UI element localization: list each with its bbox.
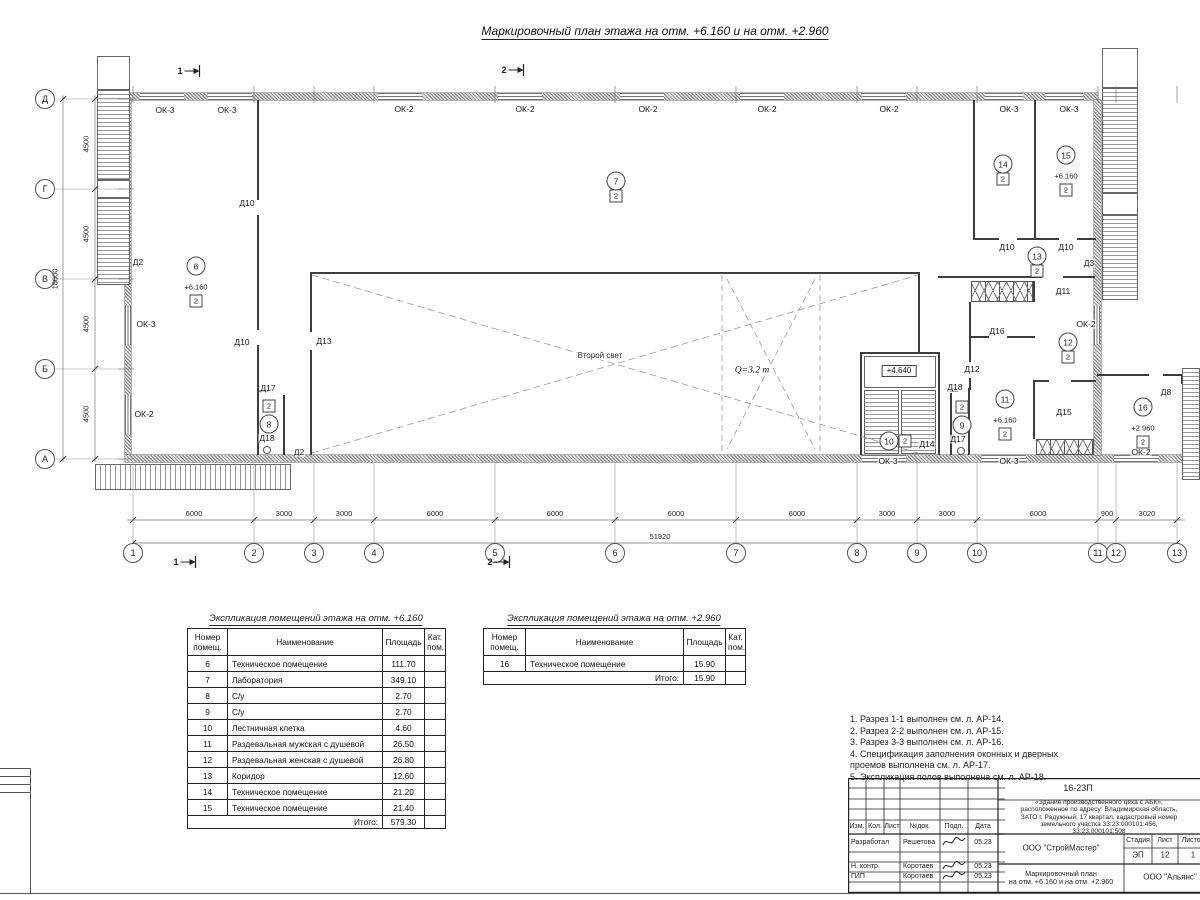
table-cell (425, 672, 446, 688)
door-label: Д15 (1055, 408, 1072, 417)
table-cell (425, 656, 446, 672)
room-6-elevation: +6.160 (184, 283, 207, 292)
signature-icon (941, 835, 967, 849)
door-label: Д11 (1055, 287, 1072, 296)
dimension-label: 3000 (939, 509, 956, 518)
table-cell: 349.10 (383, 672, 425, 688)
dimension-label: 900 (1101, 509, 1114, 518)
axis-bubble-12: 12 (1106, 543, 1126, 563)
wc-fixture (957, 447, 965, 455)
door-label: Д10 (1057, 243, 1074, 252)
room-6-category: 2 (190, 295, 203, 308)
table-header-cell: Площадь (684, 629, 726, 656)
table-cell: 8 (188, 688, 228, 704)
window (125, 395, 131, 435)
table-cell: С/у (228, 704, 383, 720)
total-label: Итого: (484, 672, 684, 685)
door-label: Д16 (988, 327, 1005, 336)
table-row: 15Техническое помещение21.40 (188, 800, 446, 816)
stamp-role-cell: 05.23 (974, 863, 992, 871)
window (140, 93, 184, 100)
table-cell (726, 656, 746, 672)
table-cell: 21.40 (383, 800, 425, 816)
stair-flight (1102, 88, 1138, 193)
table-cell (425, 720, 446, 736)
partition-wall (938, 352, 940, 455)
dimension-label: 4500 (82, 316, 91, 333)
table-cell: Техническое помещение (228, 784, 383, 800)
table-header-cell: Кат. пом. (425, 629, 446, 656)
room-11-elevation: +6.160 (993, 416, 1016, 425)
axis-bubble-6: 6 (605, 543, 625, 563)
room-16-category: 2 (1137, 436, 1150, 449)
note-item: 3. Разрез 3-3 выполнен см. л. АР-16. (850, 737, 1180, 749)
dimension-label: 3000 (879, 509, 896, 518)
door-label: Д14 (918, 440, 935, 449)
partition-wall (860, 352, 862, 455)
table-cell: Раздевальная женская с душевой (228, 752, 383, 768)
partition-wall (1034, 100, 1036, 238)
window-label: ОК-2 (756, 105, 777, 114)
axis-bubble-9: 9 (907, 543, 927, 563)
stair-flight (95, 464, 291, 490)
frame-cell-line (0, 776, 30, 777)
room-8-category: 2 (263, 400, 276, 413)
table-row: 10Лестничная клетка4.60 (188, 720, 446, 736)
sheets-value: 1 (1191, 852, 1195, 861)
door-label: Д3 (1083, 259, 1095, 268)
door-label: Д13 (315, 337, 332, 346)
axis-bubble-1: 1 (123, 543, 143, 563)
partition-wall (860, 352, 940, 354)
table-header-cell: Номер помещ. (188, 629, 228, 656)
axis-bubble-Д: Д (35, 89, 55, 109)
door-label: Д18 (946, 383, 963, 392)
stair-landing (97, 56, 130, 90)
wc-fixture (263, 446, 271, 454)
stamp-header-col: Подл. (945, 823, 964, 831)
axis-bubble-А: А (35, 449, 55, 469)
sheet-label: Лист (1157, 837, 1172, 845)
partition-wall (1077, 238, 1096, 240)
door-label: Д17 (949, 435, 966, 444)
partition-wall (1007, 336, 1035, 338)
project-description: «Здание производственного цеха с АБК», р… (1015, 799, 1184, 835)
frame-cell-line (0, 768, 30, 769)
dimension-label: 6000 (1030, 509, 1047, 518)
partition-wall (257, 100, 259, 200)
dimension-label: 6000 (186, 509, 203, 518)
partition-wall (969, 338, 971, 362)
table-cell: Техническое помещение (228, 800, 383, 816)
partition-wall (310, 272, 920, 274)
customer-org: ООО "Альянс" (1143, 874, 1197, 883)
window-label: ОК-3 (998, 457, 1019, 466)
axis-bubble-2: 2 (244, 543, 264, 563)
dimension-label: 3020 (1139, 509, 1156, 518)
drawing-name: Маркировочный план на отм. +6.160 и на о… (1009, 870, 1113, 886)
table-cell: 13 (188, 768, 228, 784)
room-7-category: 2 (610, 190, 623, 203)
window (740, 93, 784, 100)
table-cell (425, 800, 446, 816)
table-cell (425, 768, 446, 784)
window-label: ОК-2 (637, 105, 658, 114)
dimension-total: 51920 (650, 532, 671, 541)
table-cell: 26.80 (383, 752, 425, 768)
stamp-header-col: Изм. (850, 823, 865, 831)
table-cell: 15.90 (684, 656, 726, 672)
axis-bubble-Б: Б (35, 359, 55, 379)
axis-bubble-3: 3 (304, 543, 324, 563)
table-row: 6Техническое помещение111.70 (188, 656, 446, 672)
axis-bubble-8: 8 (847, 543, 867, 563)
table-cell: 12.60 (383, 768, 425, 784)
door-label: Д2 (293, 448, 305, 457)
crane-capacity-label: Q=3.2 т (734, 366, 770, 376)
room-6-marker: 6 (187, 257, 206, 276)
table-cell: 15 (188, 800, 228, 816)
table-total-row: Итого:15.90 (484, 672, 746, 685)
sheet-value: 12 (1161, 852, 1170, 861)
table-row: 7Лаборатория349.10 (188, 672, 446, 688)
doc-number: 16-23П (1063, 784, 1093, 794)
table-cell (425, 816, 446, 829)
room-12-category: 2 (1062, 351, 1075, 364)
window (1045, 93, 1083, 100)
window (862, 93, 906, 100)
total-label: Итого: (188, 816, 383, 829)
table-cell: Раздевальная мужская с душевой (228, 736, 383, 752)
stamp-header-col: Кол. (868, 823, 882, 831)
partition-wall (1097, 374, 1149, 376)
partition-wall (257, 215, 259, 330)
stamp-role-cell: Н. контр. (851, 863, 880, 871)
dimension-label: 3000 (336, 509, 353, 518)
note-item: 4. Спецификация заполнения оконных и две… (850, 749, 1180, 772)
total-value: 579.30 (383, 816, 425, 829)
table-title: Экспликация помещений этажа на отм. +6.1… (209, 613, 422, 626)
drawing-title: Маркировочный план этажа на отм. +6.160 … (481, 24, 828, 40)
stair-flight (1182, 368, 1200, 480)
partition-wall (973, 100, 975, 238)
stair-landing (1102, 48, 1138, 88)
window (208, 93, 252, 100)
table-cell: Техническое помещение (228, 656, 383, 672)
window (985, 93, 1023, 100)
door-label: Д10 (233, 338, 250, 347)
locker-block (1036, 439, 1094, 455)
stage-label: Стадия (1126, 837, 1150, 845)
room-13-marker: 13 (1028, 247, 1047, 266)
table-row: 9С/у2.70 (188, 704, 446, 720)
dimension-label: 6000 (789, 509, 806, 518)
table-cell (425, 704, 446, 720)
signature-icon (941, 869, 967, 883)
table-cell (425, 784, 446, 800)
stamp-header-col: №док. (910, 823, 931, 831)
room-10-category: 2 (899, 435, 912, 448)
table-header-cell: Площадь (383, 629, 425, 656)
stamp-role-cell: Коротаев (903, 863, 933, 871)
stair-flight (97, 90, 130, 180)
stair-landing (1102, 193, 1138, 215)
table-cell: Лестничная клетка (228, 720, 383, 736)
drawing-sheet: Маркировочный план этажа на отм. +6.160 … (0, 0, 1200, 900)
window (378, 93, 422, 100)
table-cell: 2.70 (383, 704, 425, 720)
table-cell: 2.70 (383, 688, 425, 704)
stamp-role-cell: Решетова (903, 839, 935, 847)
window-label: ОК-3 (1058, 105, 1079, 114)
axis-bubble-7: 7 (726, 543, 746, 563)
sheets-label: Листов (1182, 837, 1200, 845)
partition-wall (969, 336, 989, 338)
note-item: 1. Разрез 1-1 выполнен см. л. АР-14. (850, 714, 1180, 726)
stair-flight (1102, 215, 1138, 300)
room-16-elevation: +2.960 (1131, 424, 1154, 433)
stage-value: ЭП (1132, 852, 1144, 861)
dimension-label: 6000 (668, 509, 685, 518)
room-8-marker: 8 (260, 415, 279, 434)
window-label: ОК-3 (154, 106, 175, 115)
axis-bubble-10: 10 (967, 543, 987, 563)
dimension-label: 6000 (547, 509, 564, 518)
partition-wall (1033, 281, 1035, 302)
stamp-header-col: Лист (884, 823, 899, 831)
table-total-row: Итого:579.30 (188, 816, 446, 829)
table-header-cell: Наименование (228, 629, 383, 656)
table-row: 16Техническое помещение15.90 (484, 656, 746, 672)
frame-cell-line (30, 768, 31, 893)
window-label: ОК-2 (1075, 320, 1096, 329)
stamp-header-col: Дата (975, 823, 991, 831)
door-label: Д18 (258, 434, 275, 443)
table-row: 12Раздевальная женская с душевой26.80 (188, 752, 446, 768)
section-mark-label: 1 (173, 557, 178, 567)
explication-table: Номер помещ.НаименованиеПлощадьКат. пом.… (483, 628, 746, 685)
table-row: 11Раздевальная мужская с душевой26.50 (188, 736, 446, 752)
table-cell: Коридор (228, 768, 383, 784)
section-mark-1: 1 (177, 65, 202, 77)
dimension-total: 18000 (51, 269, 60, 290)
partition-wall (1163, 374, 1183, 376)
partition-wall (283, 395, 285, 455)
window-label: ОК-2 (1130, 448, 1151, 457)
section-arrow-icon (185, 65, 203, 77)
dimension-label: 6000 (427, 509, 444, 518)
table-header-cell: Кат. пом. (726, 629, 746, 656)
table-row: 8С/у2.70 (188, 688, 446, 704)
door-label: Д8 (1160, 388, 1172, 397)
axis-bubble-13: 13 (1167, 543, 1187, 563)
frame-cell-line (0, 792, 30, 793)
elevation-label: +4.640 (882, 365, 917, 377)
room-15-marker: 15 (1057, 146, 1076, 165)
room-11-category: 2 (999, 428, 1012, 441)
room-9-category: 2 (956, 401, 969, 414)
design-org: ООО "СтройМастер" (1022, 845, 1099, 854)
room-12-marker: 12 (1059, 333, 1078, 352)
axis-bubble-11: 11 (1088, 543, 1108, 563)
window-label: ОК-3 (135, 320, 156, 329)
room-14-category: 2 (997, 173, 1010, 186)
sheet-frame-bottom (0, 893, 1200, 894)
stair-flight (97, 198, 130, 285)
window-label: ОК-2 (133, 410, 154, 419)
door-label: Д12 (963, 365, 980, 374)
notes-list: 1. Разрез 1-1 выполнен см. л. АР-14.2. Р… (850, 714, 1180, 783)
window-label: ОК-2 (393, 105, 414, 114)
stamp-role-cell: Коротаев (903, 873, 933, 881)
partition-wall (969, 378, 971, 390)
table-cell: С/у (228, 688, 383, 704)
table-cell: 111.70 (383, 656, 425, 672)
room-10-marker: 10 (880, 432, 899, 451)
table-cell: 11 (188, 736, 228, 752)
stamp-role-cell: 05.23 (974, 873, 992, 881)
section-arrow-icon (181, 556, 199, 568)
window-label: ОК-3 (998, 105, 1019, 114)
axis-bubble-4: 4 (364, 543, 384, 563)
axis-bubble-Г: Г (35, 179, 55, 199)
dimension-label: 4500 (82, 406, 91, 423)
partition-wall (938, 276, 1042, 278)
table-cell: 4.60 (383, 720, 425, 736)
door-label: Д2 (132, 258, 144, 267)
window-label: ОК-3 (216, 106, 237, 115)
window (620, 93, 664, 100)
wall (125, 93, 1098, 100)
window (498, 93, 542, 100)
room-15-elevation: +6.160 (1054, 172, 1077, 181)
partition-wall (1033, 380, 1049, 382)
window-label: ОК-3 (877, 457, 898, 466)
total-value: 15.90 (684, 672, 726, 685)
window-label: ОК-2 (878, 105, 899, 114)
partition-wall (1071, 380, 1096, 382)
table-cell: Техническое помещение (526, 656, 684, 672)
dimension-label: 3000 (276, 509, 293, 518)
locker-block (971, 281, 1033, 302)
section-mark-2: 2 (501, 64, 526, 76)
table-row: 14Техническое помещение21.20 (188, 784, 446, 800)
stamp-role-cell: Разработал (851, 839, 889, 847)
table-cell: 7 (188, 672, 228, 688)
partition-wall (310, 350, 312, 455)
section-mark-label: 2 (501, 65, 506, 75)
section-mark-2: 2 (487, 556, 512, 568)
room-14-marker: 14 (994, 155, 1013, 174)
table-header-cell: Номер помещ. (484, 629, 526, 656)
room-16-marker: 16 (1134, 398, 1153, 417)
section-arrow-icon (495, 556, 513, 568)
window-label: ОК-2 (514, 105, 535, 114)
partition-wall (969, 302, 971, 338)
door-label: Д10 (998, 243, 1015, 252)
wall (125, 455, 1200, 462)
table-title: Экспликация помещений этажа на отм. +2.9… (507, 613, 720, 626)
section-mark-label: 1 (177, 66, 182, 76)
table-cell: 9 (188, 704, 228, 720)
frame-cell-line (0, 784, 30, 785)
stair-landing (97, 180, 130, 198)
room-13-category: 2 (1031, 265, 1044, 278)
partition-wall (973, 238, 999, 240)
table-row: 13Коридор12.60 (188, 768, 446, 784)
table-cell: 21.20 (383, 784, 425, 800)
room-15-category: 2 (1060, 184, 1073, 197)
note-item: 2. Разрез 2-2 выполнен см. л. АР-15. (850, 726, 1180, 738)
void-annotation: Второй свет (577, 352, 624, 360)
table-header-cell: Наименование (526, 629, 684, 656)
window (125, 305, 131, 345)
table-cell: 10 (188, 720, 228, 736)
table-cell (425, 752, 446, 768)
partition-wall (1063, 276, 1095, 278)
table-cell: 16 (484, 656, 526, 672)
table-cell: 14 (188, 784, 228, 800)
table-cell: 6 (188, 656, 228, 672)
stamp-role-cell: 05.23 (974, 839, 992, 847)
partition-wall (1033, 380, 1035, 439)
partition-wall (1017, 238, 1059, 240)
table-cell (425, 688, 446, 704)
stamp-role-cell: ГИП (851, 873, 865, 881)
table-cell: 26.50 (383, 736, 425, 752)
dimension-label: 4500 (82, 136, 91, 153)
section-mark-1: 1 (173, 556, 198, 568)
door-label: Д10 (238, 199, 255, 208)
partition-wall (918, 274, 920, 352)
room-9-marker: 9 (953, 416, 972, 435)
section-mark-label: 2 (487, 557, 492, 567)
partition-wall (310, 274, 312, 332)
table-cell: Лаборатория (228, 672, 383, 688)
dimension-label: 4500 (82, 226, 91, 243)
table-cell: 12 (188, 752, 228, 768)
section-arrow-icon (509, 64, 527, 76)
title-block: 16-23П «Здание производственного цеха с … (848, 778, 1200, 893)
table-cell (726, 672, 746, 685)
wall (1094, 100, 1101, 455)
table-cell (425, 736, 446, 752)
room-7-marker: 7 (607, 172, 626, 191)
door-label: Д17 (259, 384, 276, 393)
room-11-marker: 11 (996, 390, 1015, 409)
explication-table: Номер помещ.НаименованиеПлощадьКат. пом.… (187, 628, 446, 829)
